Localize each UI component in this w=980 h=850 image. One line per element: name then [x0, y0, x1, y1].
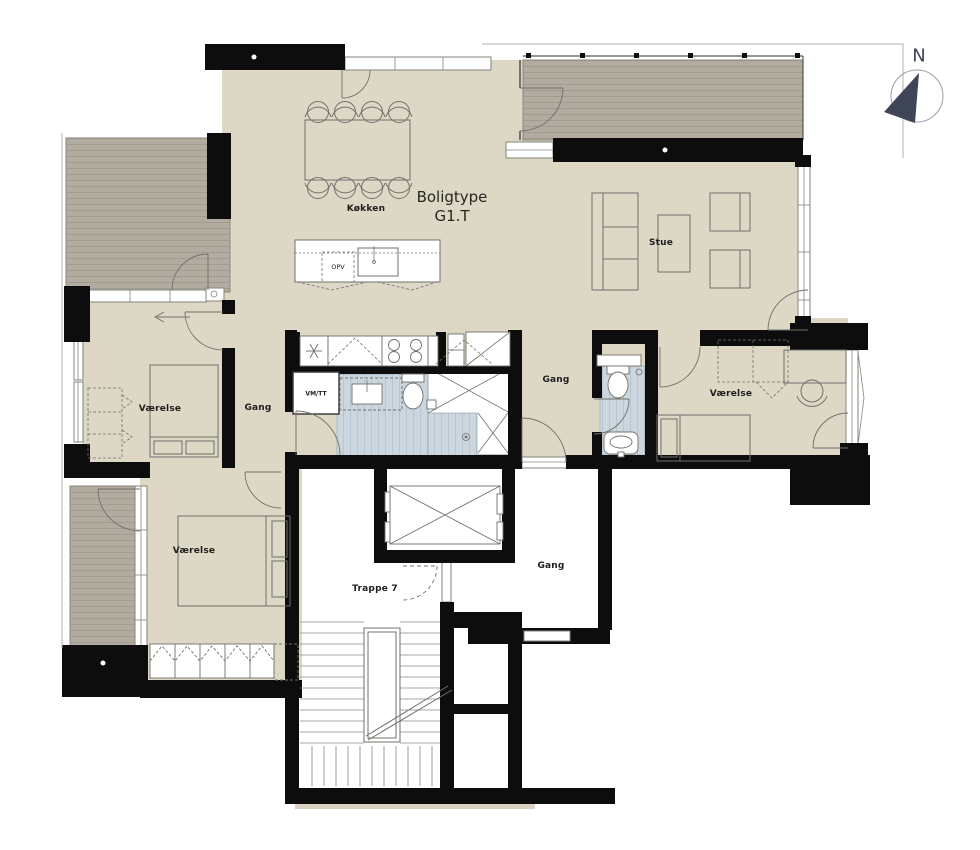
- washer-dryer-closet: [293, 372, 339, 414]
- kitchen-counter-row: [300, 332, 510, 366]
- floor-plan-canvas: Boligtype G1.T Køkken Stue Værelse Gang …: [0, 0, 980, 850]
- balcony-bottom-left: [70, 486, 135, 648]
- terrace-top-left: [66, 138, 230, 292]
- staircase-core: [364, 628, 452, 742]
- north-arrow-icon: [884, 70, 943, 123]
- door-swing-dashed: [403, 566, 437, 600]
- gang-window-overlay: [524, 631, 570, 641]
- balcony-top-right: [523, 53, 803, 140]
- elevator: [385, 486, 503, 544]
- kitchen-island: [295, 240, 440, 282]
- floor-plan-drawing: [0, 0, 980, 850]
